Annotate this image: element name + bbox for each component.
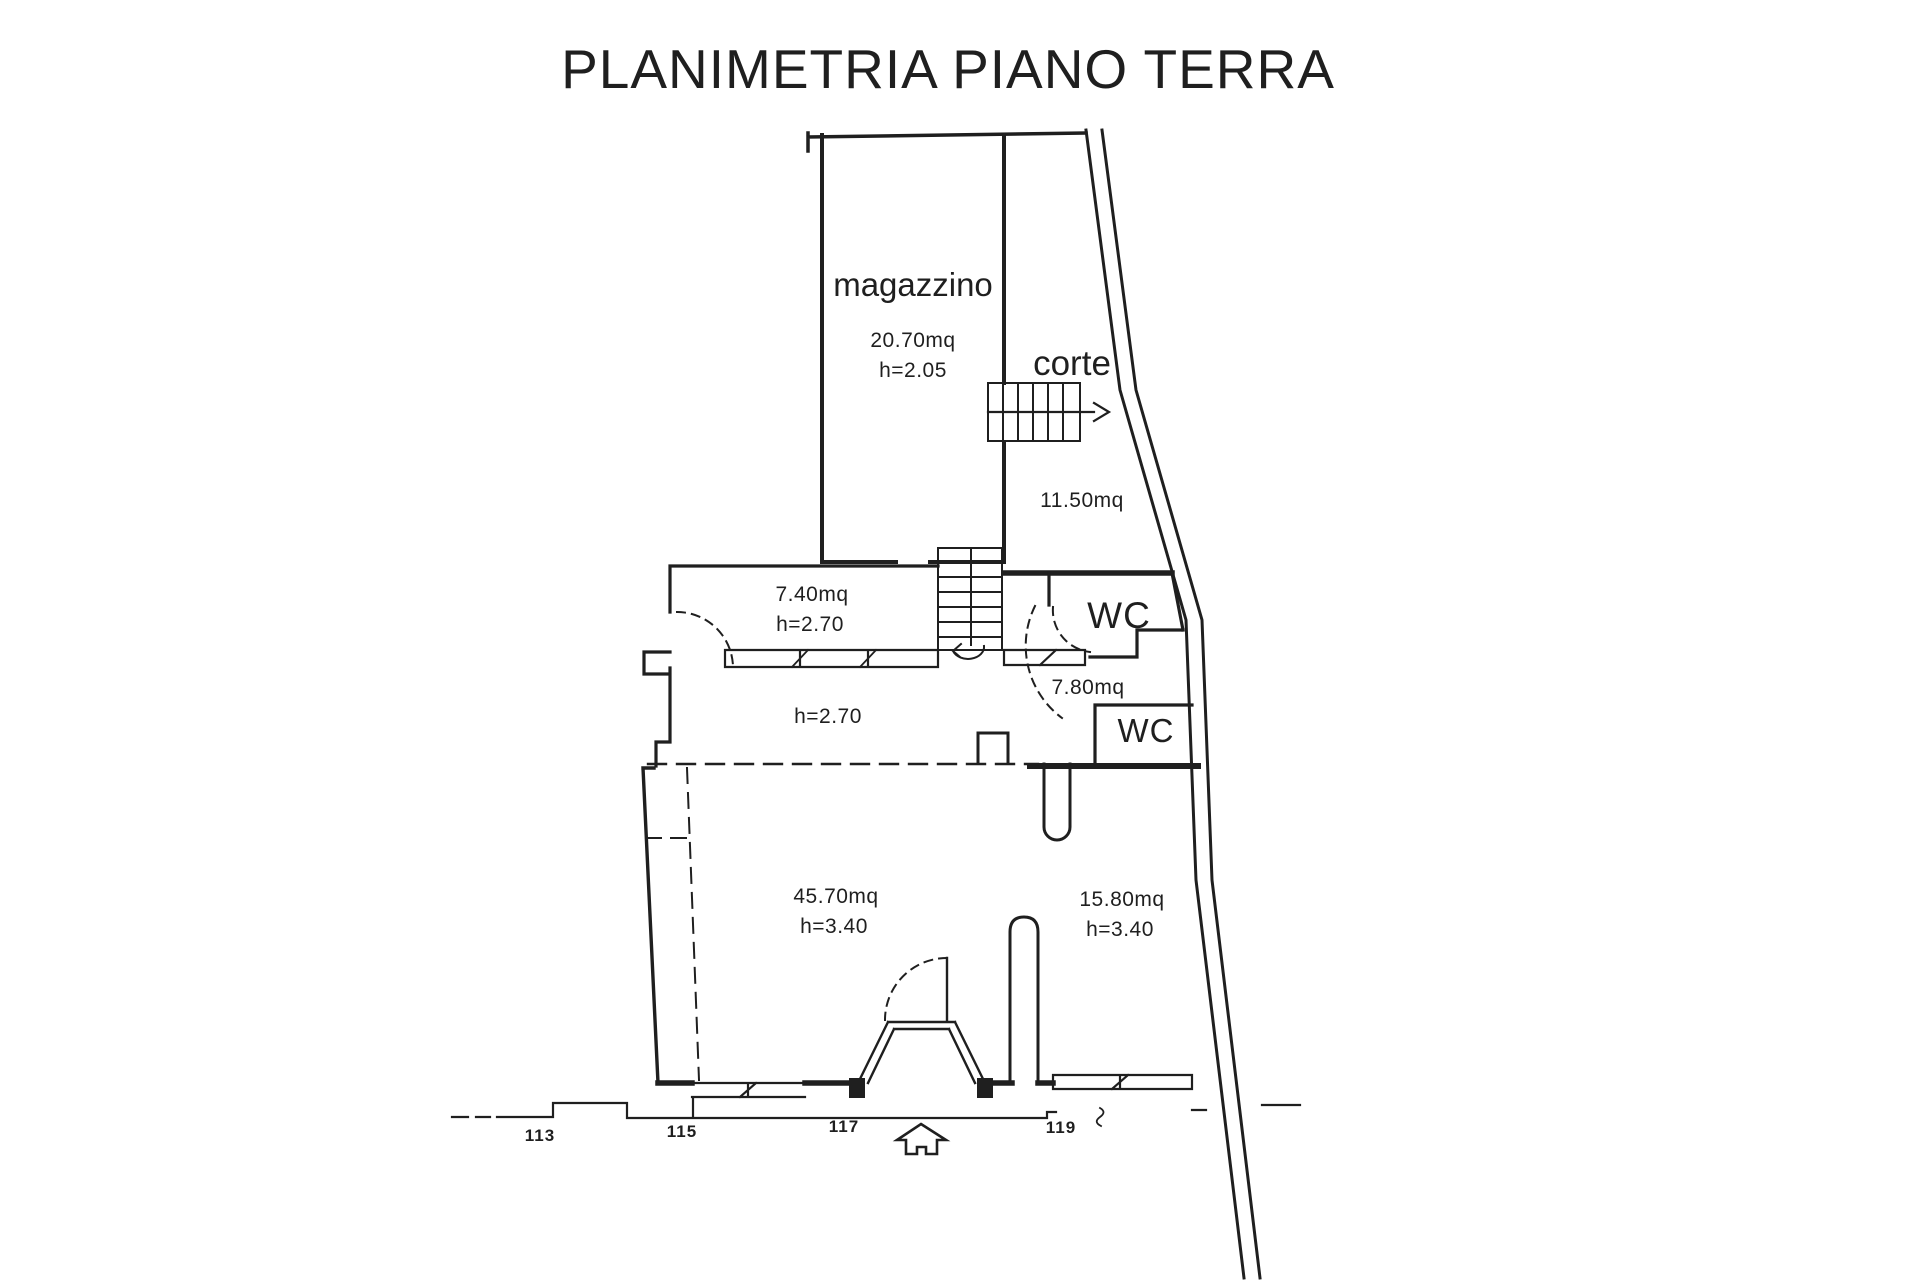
street-number-117: 117	[829, 1117, 859, 1136]
magazzino-height-label: h=2.05	[879, 359, 947, 382]
window-band-main-room	[692, 1083, 805, 1097]
storage-area-label: 7.40mq	[775, 583, 848, 606]
wc-lower-label: WC	[1118, 712, 1175, 749]
entrance-jamb-blocks	[849, 1078, 993, 1098]
window-band-side-room	[1053, 1075, 1192, 1089]
floor-plan-canvas: PLANIMETRIA PIANO TERRA magazzino 20.70m…	[0, 0, 1920, 1280]
window-band-storage	[725, 650, 938, 667]
wc-upper-label: WC	[1087, 595, 1151, 636]
internal-stairs-arrow	[953, 644, 984, 659]
room-divider-upper-wall	[1044, 764, 1070, 840]
magazzino-area-label: 20.70mq	[870, 329, 955, 352]
side-room-area-label: 15.80mq	[1079, 888, 1164, 911]
window-band-storage-ticks	[792, 650, 876, 667]
room-divider-pillar	[1010, 917, 1038, 1083]
side-room-height-label: h=3.40	[1086, 918, 1154, 941]
hatched-wall-segment	[1004, 650, 1085, 665]
boundary-top-wall	[808, 133, 1086, 151]
street-line	[452, 1098, 1300, 1118]
street-number-115: 115	[667, 1122, 697, 1141]
main-room-left-wall	[643, 768, 658, 1083]
hallway-height-label: h=2.70	[794, 705, 862, 728]
survey-mark	[1097, 1108, 1104, 1126]
antibagno-area-label: 7.80mq	[1051, 676, 1124, 699]
storage-height-label: h=2.70	[776, 613, 844, 636]
main-room-area-label: 45.70mq	[793, 885, 878, 908]
entrance-trapezoid	[858, 1022, 985, 1083]
corridor-corner-wall	[978, 733, 1008, 762]
main-room-height-label: h=3.40	[800, 915, 868, 938]
street-number-119: 119	[1046, 1118, 1076, 1137]
corte-area-label: 11.50mq	[1040, 489, 1124, 512]
plan-labels: PLANIMETRIA PIANO TERRA magazzino 20.70m…	[525, 38, 1335, 1145]
street-number-113: 113	[525, 1126, 555, 1145]
floor-plan-page: PLANIMETRIA PIANO TERRA magazzino 20.70m…	[0, 0, 1920, 1280]
magazzino-name-label: magazzino	[833, 266, 993, 303]
entrance-house-icon	[897, 1124, 946, 1154]
corte-name-label: corte	[1033, 344, 1111, 383]
page-title: PLANIMETRIA PIANO TERRA	[561, 38, 1335, 100]
